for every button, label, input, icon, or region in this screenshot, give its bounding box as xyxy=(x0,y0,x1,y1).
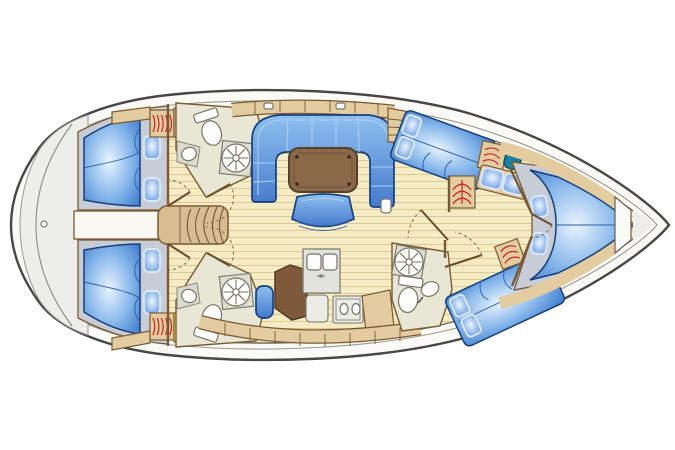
hanging-locker-icon xyxy=(150,313,174,340)
berth-pillow xyxy=(144,249,160,272)
cabinet-handle xyxy=(381,199,391,213)
hanging-locker-icon xyxy=(150,110,174,137)
berth-pillow xyxy=(144,136,160,159)
icebox-lid xyxy=(306,295,328,322)
chart-table xyxy=(275,265,307,320)
stove xyxy=(333,296,363,323)
galley-sink-basin xyxy=(307,254,321,270)
berth-pillow xyxy=(531,232,549,255)
wardrobe-locker xyxy=(449,176,475,208)
shower-vent-fan-icon xyxy=(395,248,423,276)
table-peg xyxy=(295,155,298,158)
galley-sink-basin xyxy=(323,254,337,270)
berth-pillow xyxy=(144,291,160,314)
seat-cushion xyxy=(479,167,504,191)
shower-vent-fan-icon xyxy=(222,278,250,306)
locker-knob xyxy=(264,103,273,109)
table-peg xyxy=(347,182,350,185)
table-peg xyxy=(295,182,298,185)
yacht-plan-canvas xyxy=(0,0,675,450)
saloon-table xyxy=(289,148,357,192)
locker-knob xyxy=(336,103,345,109)
berth-pillow xyxy=(144,178,160,201)
table-peg xyxy=(347,155,350,158)
companionway-steps xyxy=(158,206,228,244)
backstay-fitting-icon xyxy=(41,221,47,227)
head-mid xyxy=(392,243,452,331)
yacht-interior-plan xyxy=(0,0,675,450)
shower-vent-fan-icon xyxy=(222,144,250,172)
nav-seat xyxy=(256,286,273,318)
engine-compartment xyxy=(74,211,168,239)
